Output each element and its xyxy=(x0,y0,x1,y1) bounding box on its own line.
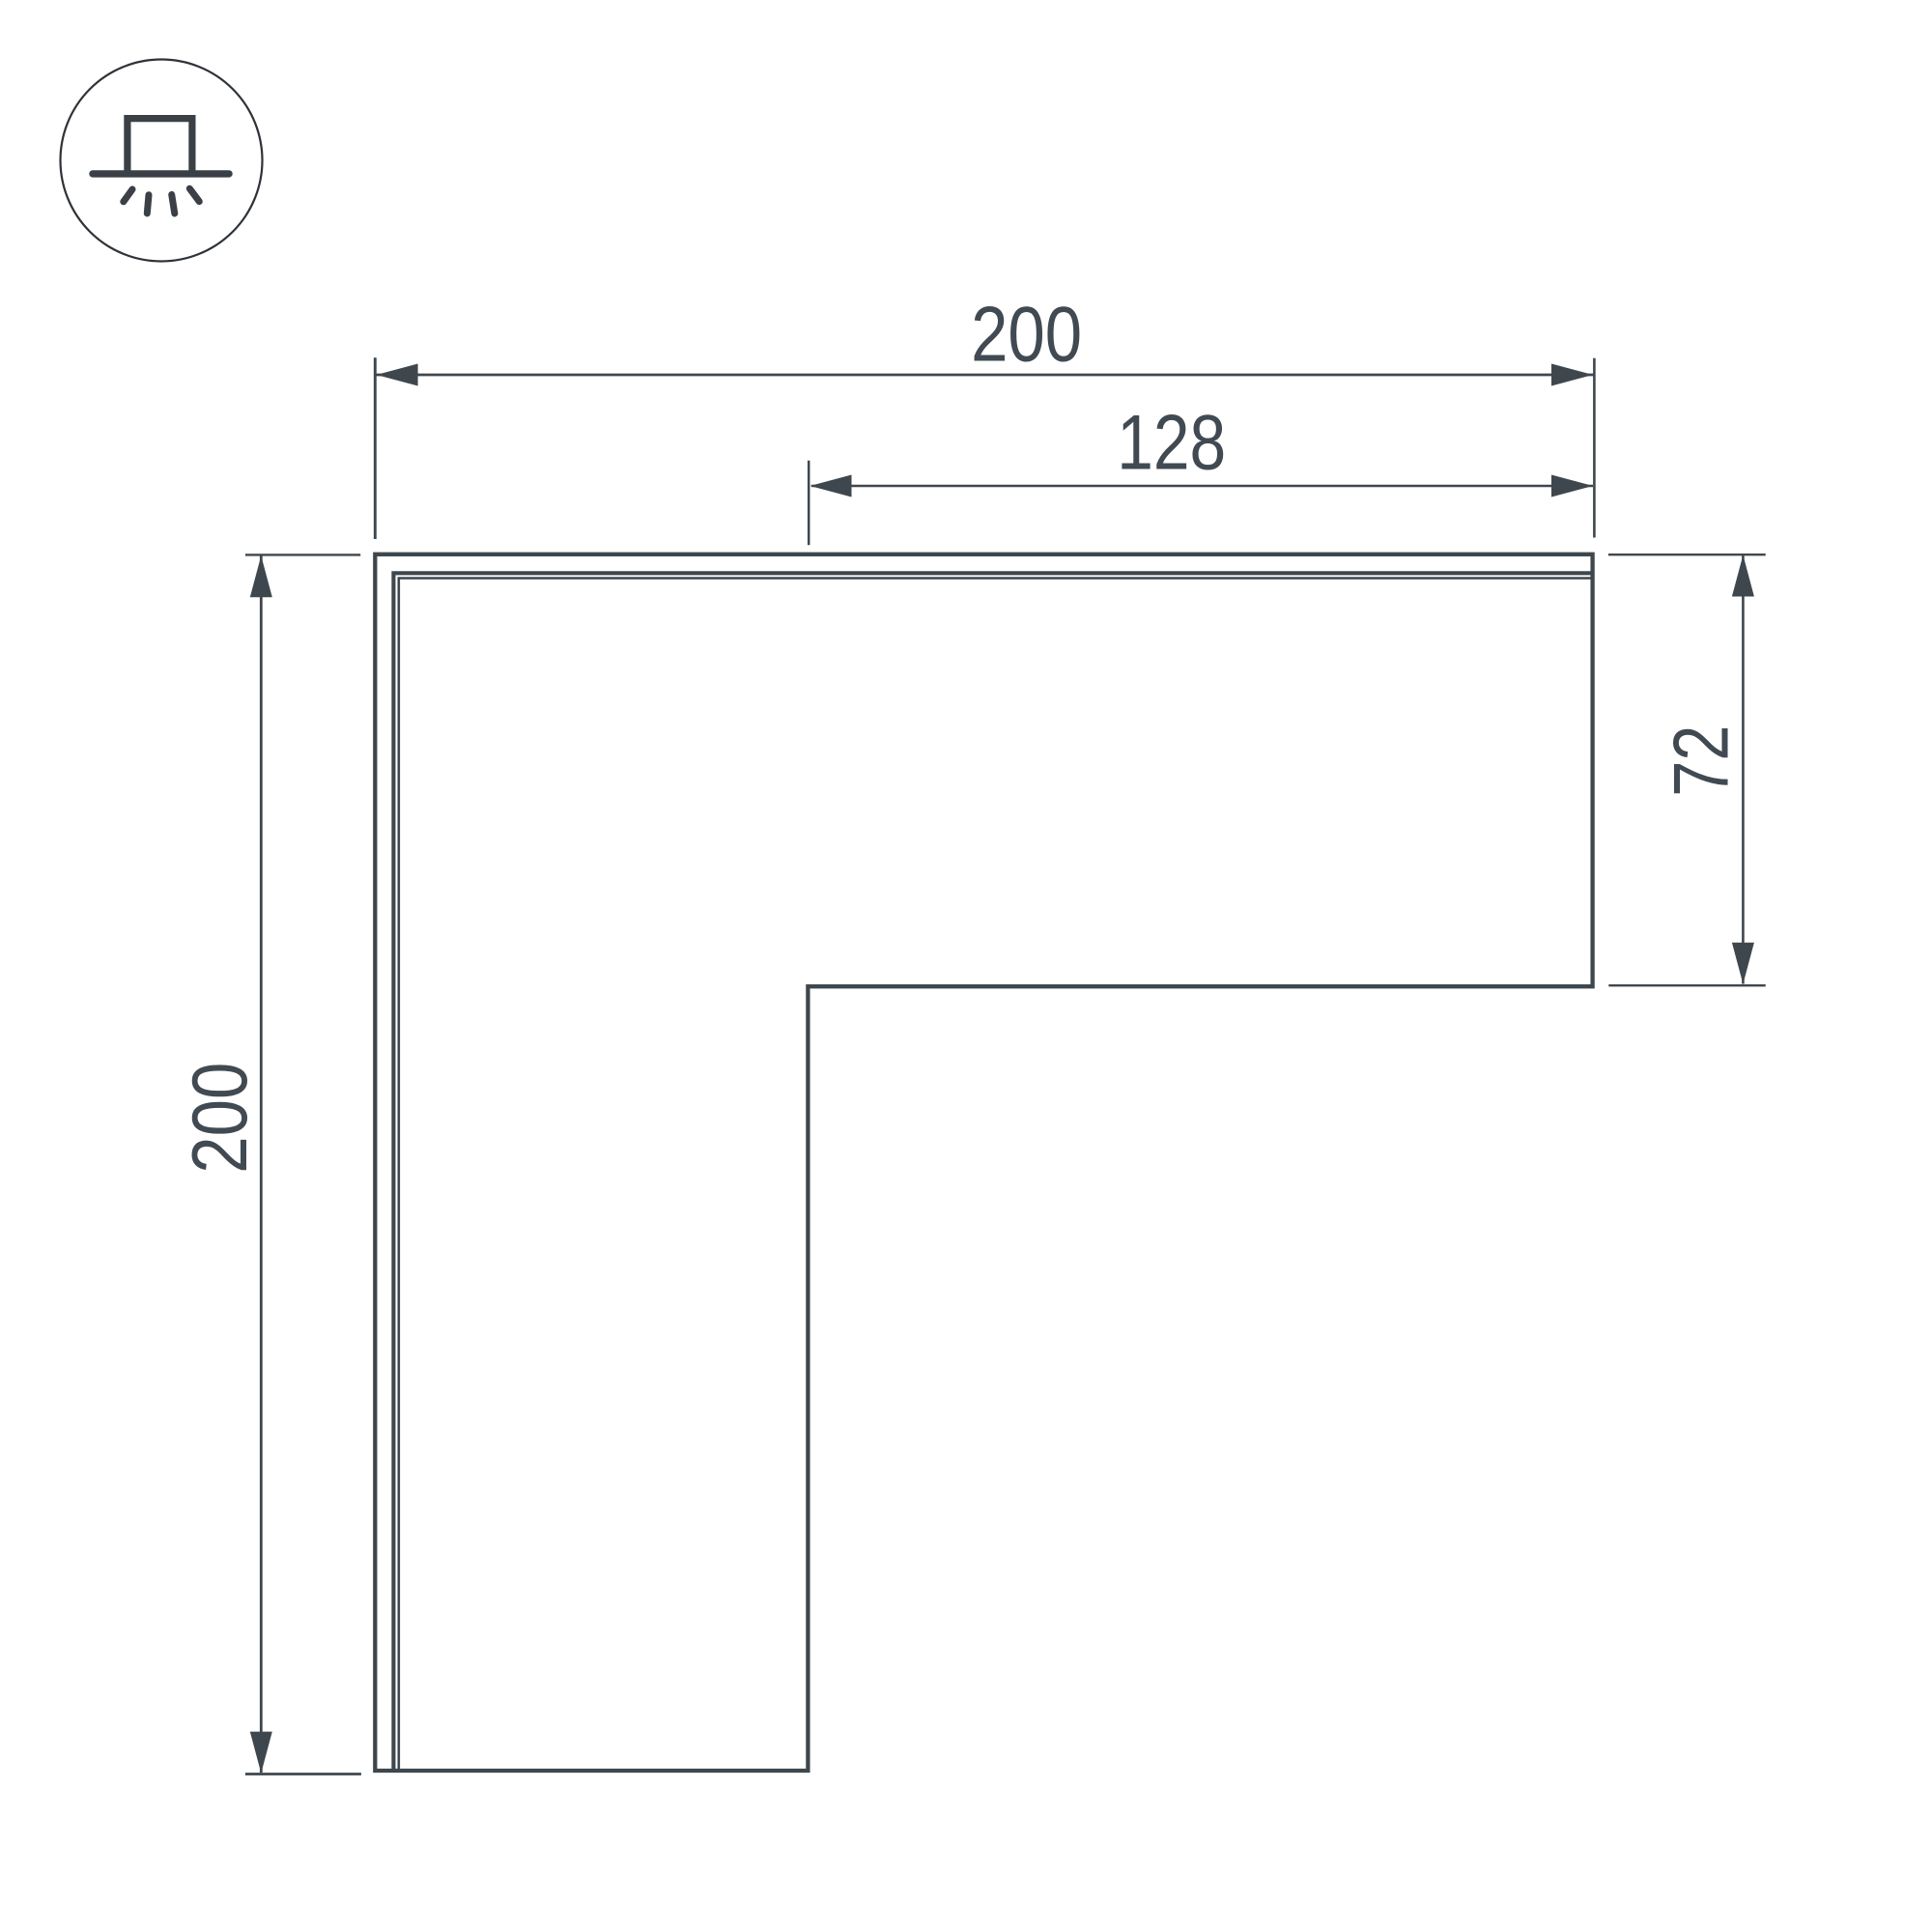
svg-text:200: 200 xyxy=(177,1063,264,1174)
svg-text:200: 200 xyxy=(971,292,1082,379)
svg-text:128: 128 xyxy=(1117,400,1226,487)
svg-text:72: 72 xyxy=(1659,725,1746,797)
